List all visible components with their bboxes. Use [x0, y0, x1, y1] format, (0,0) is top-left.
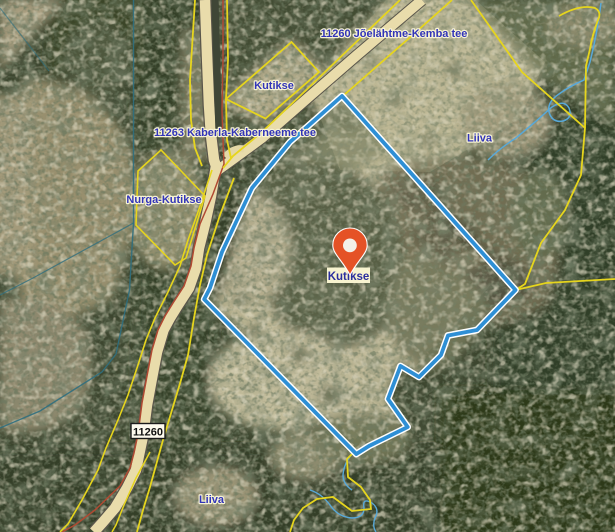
svg-text:11260 Jõelähtme-Kemba tee: 11260 Jõelähtme-Kemba tee [321, 28, 468, 40]
svg-text:Kutikse: Kutikse [254, 80, 294, 92]
svg-text:11263 Kaberla-Kaberneeme tee: 11263 Kaberla-Kaberneeme tee [154, 127, 316, 139]
svg-text:Nurga-Kutikse: Nurga-Kutikse [126, 194, 201, 206]
svg-text:Liiva: Liiva [467, 133, 493, 145]
svg-text:11260: 11260 [133, 427, 163, 439]
svg-text:Liiva: Liiva [199, 494, 225, 506]
